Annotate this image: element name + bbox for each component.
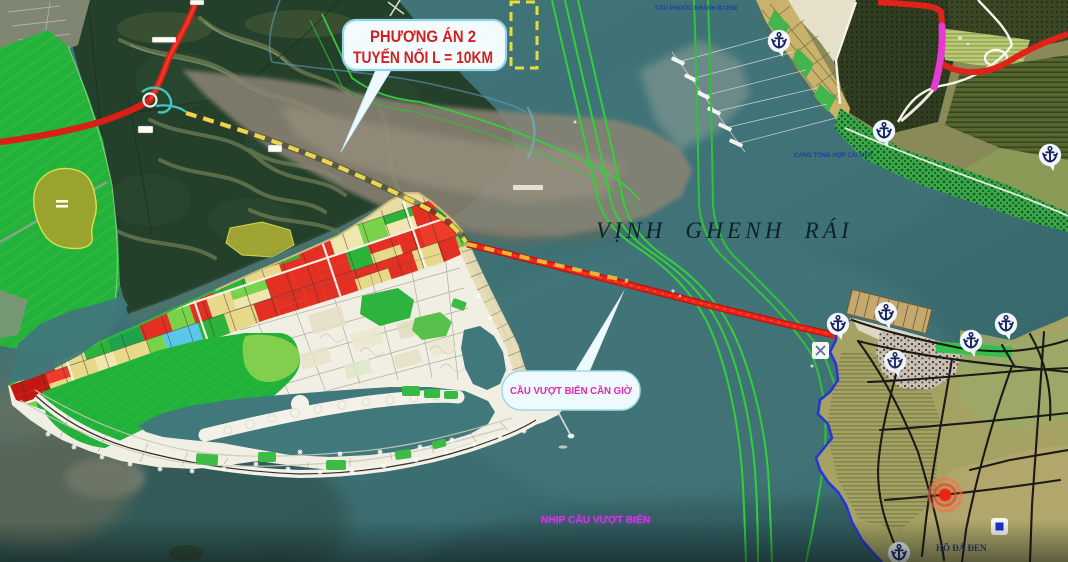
svg-text:PHƯƠNG ÁN 2: PHƯƠNG ÁN 2 — [370, 27, 476, 46]
svg-text:CẦU PHƯỚC KHÁNH B=25M: CẦU PHƯỚC KHÁNH B=25M — [655, 4, 737, 12]
svg-text:CẢNG TỔNG HỢP CÁI MÉP: CẢNG TỔNG HỢP CÁI MÉP — [794, 151, 872, 159]
svg-text:TUYẾN NỐI L = 10KM: TUYẾN NỐI L = 10KM — [353, 47, 493, 67]
svg-text:VỊNH GHENH RÁI: VỊNH GHENH RÁI — [596, 218, 853, 243]
svg-text:CẦU VƯỢT BIỂN CẦN GIỜ: CẦU VƯỢT BIỂN CẦN GIỜ — [510, 384, 632, 397]
